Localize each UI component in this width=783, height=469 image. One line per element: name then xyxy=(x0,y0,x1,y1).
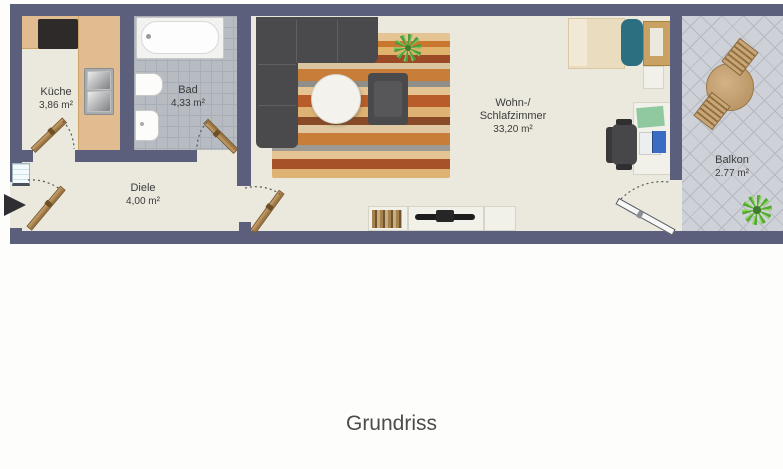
living-door-arc xyxy=(245,187,280,194)
kitchen-door-arc xyxy=(63,121,74,149)
room-label-balkon: Balkon 2.77 m² xyxy=(692,154,772,180)
room-area-diele: 4,00 m² xyxy=(103,195,183,208)
room-area-balkon: 2.77 m² xyxy=(692,167,772,180)
balcony-door-arc xyxy=(621,182,669,199)
room-label-wohn-schlafzimmer: Wohn-/ Schlafzimmer 33,20 m² xyxy=(453,97,573,136)
room-name-diele: Diele xyxy=(103,182,183,195)
plan-caption: Grundriss xyxy=(0,412,783,436)
door-swing-arcs xyxy=(0,0,783,250)
room-area-wohn: 33,20 m² xyxy=(453,123,573,136)
room-name-balkon: Balkon xyxy=(692,154,772,167)
bath-door-arc xyxy=(197,122,207,150)
entrance-door-arc xyxy=(28,180,61,190)
room-area-bad: 4,33 m² xyxy=(148,97,228,110)
room-name-wohn-line2: Schlafzimmer xyxy=(453,110,573,123)
room-label-diele: Diele 4,00 m² xyxy=(103,182,183,208)
room-name-bad: Bad xyxy=(148,84,228,97)
room-name-wohn-line1: Wohn-/ xyxy=(453,97,573,110)
floorplan-page: Küche 3,86 m² Bad 4,33 m² Diele 4,00 m² … xyxy=(0,0,783,469)
room-label-bad: Bad 4,33 m² xyxy=(148,84,228,110)
entrance-arrow-icon xyxy=(4,194,26,216)
room-label-kueche: Küche 3,86 m² xyxy=(16,86,96,112)
room-name-kueche: Küche xyxy=(16,86,96,99)
room-area-kueche: 3,86 m² xyxy=(16,99,96,112)
